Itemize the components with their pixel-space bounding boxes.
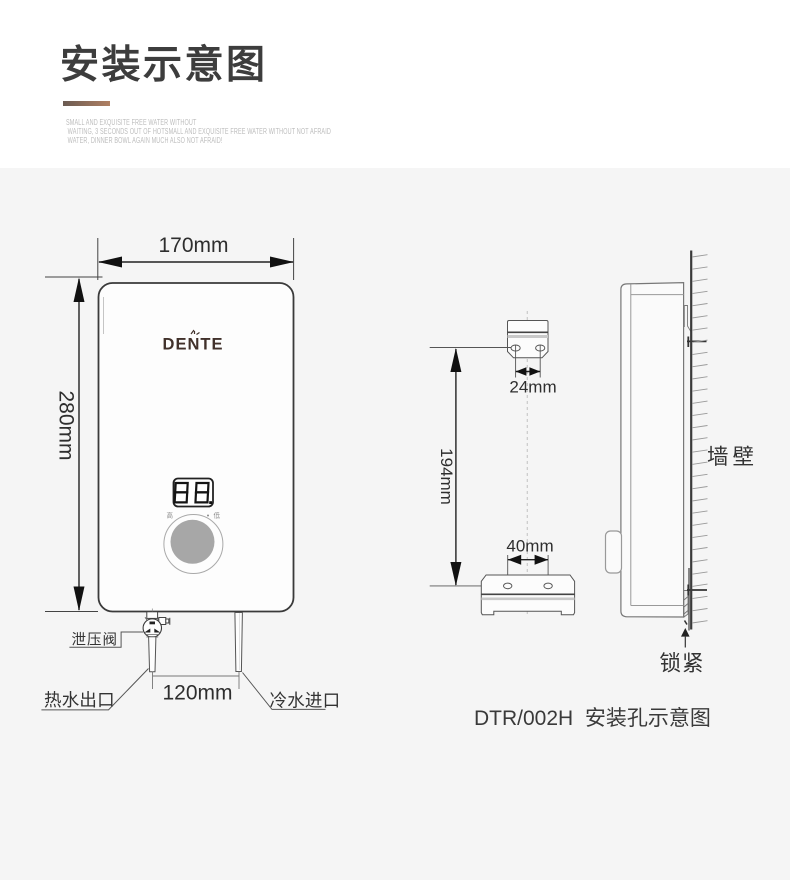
svg-text:40mm: 40mm bbox=[506, 537, 553, 556]
svg-text:泄压阀: 泄压阀 bbox=[72, 632, 119, 649]
svg-text:热水出口: 热水出口 bbox=[44, 690, 115, 710]
svg-text:170mm: 170mm bbox=[158, 234, 228, 257]
svg-text:280mm: 280mm bbox=[55, 390, 78, 460]
svg-text:24mm: 24mm bbox=[509, 378, 556, 397]
svg-text:墙壁: 墙壁 bbox=[707, 445, 758, 469]
svg-text:194mm: 194mm bbox=[437, 448, 456, 505]
svg-text:DENTE: DENTE bbox=[163, 336, 224, 354]
svg-text:DTR/002H 安装孔示意图: DTR/002H 安装孔示意图 bbox=[474, 707, 711, 730]
svg-text:高: 高 bbox=[167, 511, 174, 520]
svg-text:120mm: 120mm bbox=[162, 682, 232, 705]
svg-text:锁紧: 锁紧 bbox=[660, 652, 705, 676]
svg-text:低: 低 bbox=[214, 511, 221, 520]
svg-text:冷水进口: 冷水进口 bbox=[270, 691, 341, 711]
